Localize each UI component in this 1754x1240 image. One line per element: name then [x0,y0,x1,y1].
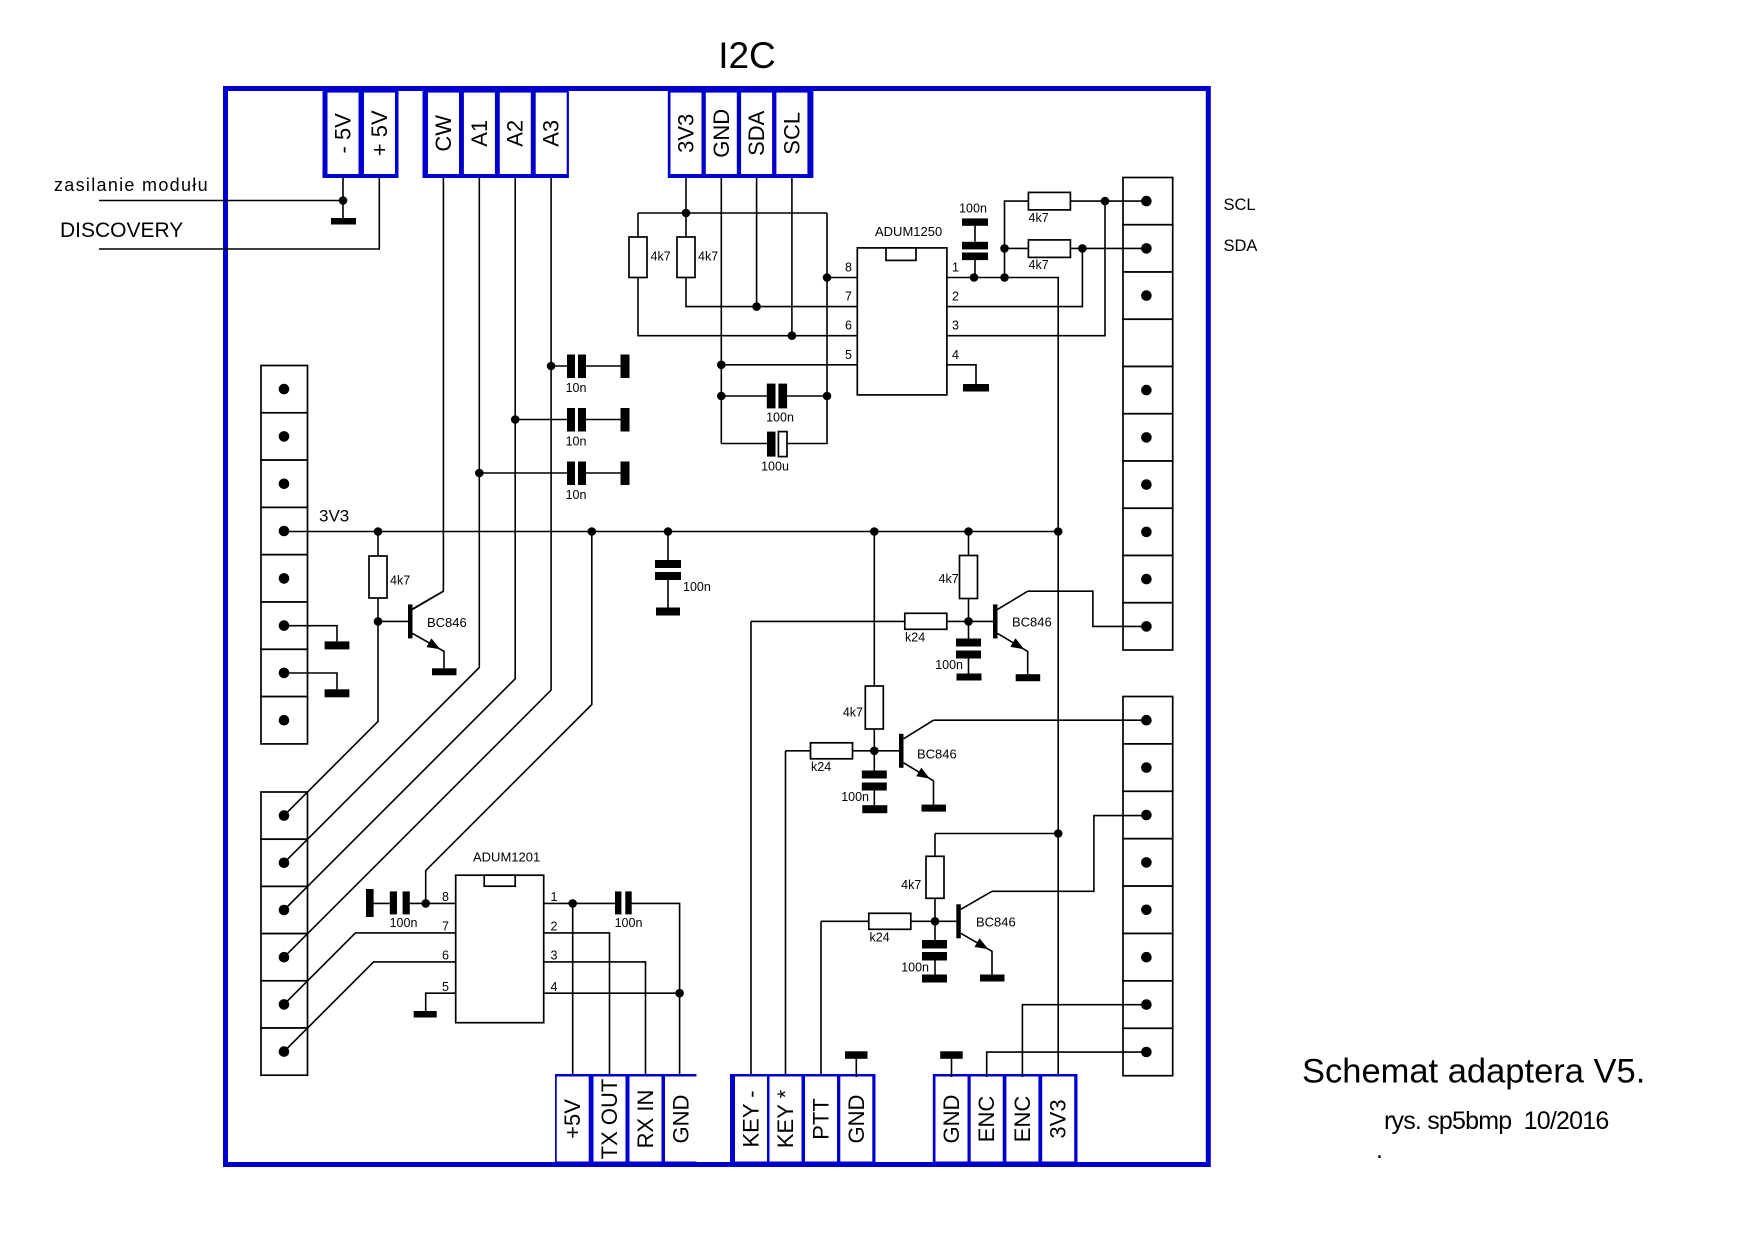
svg-text:4k7: 4k7 [1029,211,1049,225]
svg-text:I2C: I2C [718,35,776,76]
svg-text:BC846: BC846 [976,915,1016,930]
svg-text:3V3: 3V3 [674,114,699,153]
svg-text:4k7: 4k7 [651,250,671,264]
svg-text:100n: 100n [615,916,643,930]
svg-text:A3: A3 [539,120,564,147]
svg-text:GND: GND [939,1095,964,1144]
svg-text:SCL: SCL [1224,196,1256,214]
svg-text:SDA: SDA [744,110,769,156]
svg-text:5: 5 [442,980,449,994]
svg-text:k24: k24 [811,760,831,774]
svg-text:10n: 10n [566,381,587,395]
svg-text:4k7: 4k7 [939,572,959,586]
svg-text:6: 6 [442,949,449,963]
svg-text:100n: 100n [935,658,963,672]
svg-text:4k7: 4k7 [1029,258,1049,272]
svg-text:100n: 100n [390,916,418,930]
svg-text:4k7: 4k7 [390,574,410,588]
svg-text:4: 4 [952,348,959,362]
svg-text:+5V: +5V [560,1099,585,1139]
svg-text:BC846: BC846 [1012,615,1052,630]
svg-text:100n: 100n [683,580,711,594]
svg-text:CW: CW [431,115,456,152]
svg-text:4k7: 4k7 [843,706,863,720]
svg-text:- 5V: - 5V [331,113,356,154]
svg-text:KEY -: KEY - [739,1090,764,1147]
svg-text:DISCOVERY: DISCOVERY [60,219,183,242]
svg-text:7: 7 [442,920,449,934]
svg-text:TX OUT: TX OUT [597,1079,622,1160]
svg-text:Schemat adaptera V5.: Schemat adaptera V5. [1302,1053,1645,1091]
svg-text:A1: A1 [467,120,492,147]
svg-text:6: 6 [845,319,852,333]
svg-text:GND: GND [844,1095,869,1144]
svg-text:100n: 100n [901,961,929,975]
svg-text:+ 5V: + 5V [367,110,392,156]
svg-text:5: 5 [845,348,852,362]
svg-text:.: . [1376,1136,1383,1164]
svg-text:PTT: PTT [809,1098,834,1140]
svg-text:KEY *: KEY * [773,1089,798,1148]
svg-text:ENC: ENC [1010,1096,1035,1143]
svg-text:ENC: ENC [974,1096,999,1143]
svg-text:SCL: SCL [779,112,804,155]
svg-text:10n: 10n [566,435,587,449]
svg-text:SDA: SDA [1224,237,1258,255]
svg-text:100u: 100u [761,460,789,474]
svg-text:4k7: 4k7 [698,250,718,264]
svg-text:2: 2 [952,290,959,304]
svg-text:8: 8 [442,890,449,904]
svg-text:A2: A2 [503,120,528,147]
svg-text:3: 3 [952,319,959,333]
svg-text:zasilanie modułu: zasilanie modułu [54,175,209,195]
svg-text:ADUM1201: ADUM1201 [473,850,540,865]
svg-text:BC846: BC846 [917,747,957,762]
svg-text:GND: GND [709,109,734,158]
svg-text:10n: 10n [566,488,587,502]
svg-text:4k7: 4k7 [901,878,921,892]
svg-text:3V3: 3V3 [1046,1099,1071,1138]
svg-text:3: 3 [551,949,558,963]
svg-text:1: 1 [952,261,959,275]
svg-text:GND: GND [669,1095,694,1144]
svg-text:BC846: BC846 [427,615,467,630]
svg-text:100n: 100n [841,790,869,804]
svg-text:2: 2 [551,920,558,934]
svg-text:ADUM1250: ADUM1250 [875,224,942,239]
svg-text:RX IN: RX IN [633,1090,658,1149]
svg-text:100n: 100n [766,411,794,425]
svg-text:4: 4 [551,980,558,994]
svg-text:100n: 100n [959,202,987,216]
svg-text:1: 1 [551,890,558,904]
svg-text:k24: k24 [870,931,890,945]
svg-text:k24: k24 [905,631,925,645]
svg-text:rys. sp5bmp 10/2016: rys. sp5bmp 10/2016 [1384,1107,1608,1135]
svg-text:7: 7 [845,290,852,304]
svg-text:3V3: 3V3 [319,507,349,526]
svg-text:8: 8 [845,261,852,275]
